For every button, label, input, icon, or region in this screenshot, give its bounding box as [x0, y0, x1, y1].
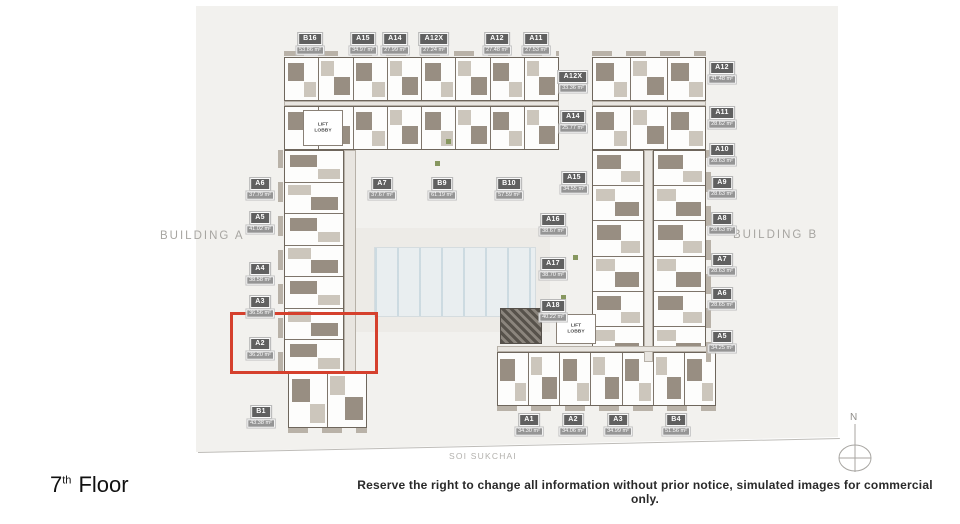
room-cell: [491, 107, 525, 149]
unit-area: 51.56 m²: [662, 427, 689, 435]
unit-name: A12: [485, 33, 509, 45]
unit-area: 38.67 m²: [539, 227, 566, 235]
unit-label-b10: B1057.59 m²: [494, 172, 524, 200]
corridor: [284, 101, 559, 106]
unit-name: A17: [541, 258, 565, 270]
room-cell: [668, 58, 705, 100]
unit-area: 40.22 m²: [539, 313, 566, 321]
room-cell: [491, 58, 525, 100]
stairs-block: [500, 308, 542, 344]
unit-area: 43.38 m²: [247, 419, 274, 427]
unit-area: 34.25 m²: [708, 344, 735, 352]
unit-area: 36.56 m²: [246, 309, 273, 317]
unit-name: A12: [710, 62, 734, 74]
unit-area: 38.58 m²: [246, 276, 273, 284]
unit-name: A3: [250, 296, 270, 308]
unit-label-a2_l: A236.20 m²: [245, 332, 275, 360]
room-cell: [654, 186, 705, 221]
unit-name: A1: [519, 414, 539, 426]
corridor: [497, 346, 716, 352]
room-cell: [654, 221, 705, 256]
unit-label-a6_l: A637.79 m²: [245, 172, 275, 200]
building-wing: [653, 150, 706, 362]
disclaimer-text: Reserve the right to change all informat…: [352, 478, 938, 506]
floor-number: 7: [50, 472, 62, 497]
unit-name: A2: [563, 414, 583, 426]
building-wing: [592, 106, 706, 150]
unit-name: A18: [541, 300, 565, 312]
unit-label-a17: A1738.70 m²: [538, 252, 568, 280]
unit-label-a4_l: A438.58 m²: [245, 257, 275, 285]
compass: N: [825, 412, 885, 476]
unit-name: A9: [712, 177, 732, 189]
room-cell: [285, 214, 343, 246]
unit-area: 33.36 m²: [559, 84, 586, 92]
unit-label-b9: B961.19 m²: [427, 172, 457, 200]
planter-icon: [435, 161, 440, 166]
unit-name: B9: [432, 178, 452, 190]
unit-area: 61.19 m²: [428, 191, 455, 199]
unit-label-a1_b: A134.30 m²: [514, 408, 544, 436]
unit-label-a15_i: A1534.55 m²: [559, 166, 589, 194]
unit-name: A6: [712, 288, 732, 300]
unit-label-a12x_i: A12X33.36 m²: [558, 65, 588, 93]
room-cell: [354, 58, 388, 100]
unit-label-a11_r: A1128.62 m²: [707, 101, 737, 129]
swimming-pool: [374, 247, 536, 317]
unit-label-a6_r: A628.65 m²: [707, 282, 737, 310]
unit-label-b4: B451.56 m²: [661, 408, 691, 436]
compass-north-label: N: [850, 412, 857, 423]
unit-name: A11: [524, 33, 547, 45]
room-cell: [560, 353, 591, 405]
room-cell: [289, 372, 328, 427]
unit-label-a8_r: A828.63 m²: [707, 207, 737, 235]
unit-name: A15: [562, 172, 586, 184]
unit-label-a7_r: A728.63 m²: [707, 248, 737, 276]
unit-label-b1: B143.38 m²: [246, 400, 276, 428]
room-cell: [525, 58, 558, 100]
unit-area: 27.48 m²: [483, 46, 510, 54]
unit-label-a2_b: A234.06 m²: [558, 408, 588, 436]
unit-label-a14_i: A1425.77 m²: [558, 105, 588, 133]
floor-title: 7thFloor: [50, 472, 129, 498]
balcony-strip: [288, 428, 367, 433]
unit-area: 28.63 m²: [708, 157, 735, 165]
building-b-label: BUILDING B: [733, 229, 818, 241]
unit-label-a11_top: A1127.53 m²: [521, 27, 551, 55]
room-cell: [319, 58, 353, 100]
unit-label-a16: A1638.67 m²: [538, 208, 568, 236]
room-cell: [388, 107, 422, 149]
unit-name: A14: [561, 111, 585, 123]
unit-label-a3_b: A334.99 m²: [603, 408, 633, 436]
lift-lobby-a: LIFT LOBBY: [303, 110, 343, 146]
unit-name: B1: [251, 406, 271, 418]
room-cell: [593, 221, 643, 256]
room-cell: [525, 107, 558, 149]
planter-icon: [573, 255, 578, 260]
unit-name: A14: [383, 33, 407, 45]
room-cell: [593, 186, 643, 221]
unit-name: A6: [250, 178, 270, 190]
floor-suffix: th: [62, 475, 71, 487]
room-cell: [654, 257, 705, 292]
unit-area: 41.02 m²: [246, 225, 273, 233]
room-cell: [593, 107, 631, 149]
building-wing: [497, 352, 716, 406]
unit-area: 28.62 m²: [708, 120, 735, 128]
unit-label-a5_l: A541.02 m²: [245, 206, 275, 234]
room-cell: [422, 58, 456, 100]
room-cell: [529, 353, 560, 405]
room-cell: [498, 353, 529, 405]
room-cell: [631, 58, 669, 100]
unit-area: 27.24 m²: [420, 46, 447, 54]
unit-name: A12X: [559, 71, 588, 83]
unit-label-a12_top: A1227.48 m²: [482, 27, 512, 55]
unit-area: 28.65 m²: [708, 301, 735, 309]
room-cell: [285, 151, 343, 183]
room-cell: [654, 353, 685, 405]
room-cell: [285, 58, 319, 100]
unit-name: A16: [541, 214, 565, 226]
unit-name: A10: [710, 144, 734, 156]
unit-name: A2: [250, 338, 270, 350]
unit-area: 38.70 m²: [539, 271, 566, 279]
unit-area: 34.06 m²: [559, 427, 586, 435]
room-cell: [422, 107, 456, 149]
room-cell: [593, 151, 643, 186]
unit-area: 27.53 m²: [522, 46, 549, 54]
building-wing: [288, 371, 367, 428]
unit-area: 28.63 m²: [708, 267, 735, 275]
unit-area: 34.55 m²: [560, 185, 587, 193]
unit-area: 53.86 m²: [296, 46, 323, 54]
room-cell: [593, 257, 643, 292]
unit-name: A15: [351, 33, 375, 45]
room-cell: [285, 277, 343, 309]
unit-label-a15_top: A1534.97 m²: [348, 27, 378, 55]
lift-lobby-b-label: LIFT LOBBY: [565, 323, 586, 334]
unit-area: 34.97 m²: [349, 46, 376, 54]
room-cell: [285, 246, 343, 278]
unit-name: B16: [298, 33, 322, 45]
unit-name: A5: [712, 331, 732, 343]
unit-area: 34.30 m²: [515, 427, 542, 435]
building-wing: [592, 150, 644, 362]
unit-label-a18: A1840.22 m²: [538, 294, 568, 322]
room-cell: [654, 151, 705, 186]
unit-name: A5: [250, 212, 270, 224]
room-cell: [654, 292, 705, 327]
unit-area: 34.99 m²: [604, 427, 631, 435]
unit-label-a5_r: A534.25 m²: [707, 325, 737, 353]
unit-area: 25.77 m²: [559, 124, 586, 132]
corridor: [592, 101, 706, 106]
building-a-label: BUILDING A: [160, 230, 245, 242]
unit-area: 27.99 m²: [381, 46, 408, 54]
room-cell: [593, 58, 631, 100]
room-cell: [285, 183, 343, 215]
unit-label-a3_l: A336.56 m²: [245, 290, 275, 318]
building-wing: [592, 57, 706, 101]
unit-label-a7_m: A737.67 m²: [367, 172, 397, 200]
corridor: [644, 150, 653, 362]
room-cell: [388, 58, 422, 100]
unit-label-a12_r: A1241.48 m²: [707, 56, 737, 84]
lift-lobby-a-label: LIFT LOBBY: [312, 122, 333, 133]
room-cell: [668, 107, 705, 149]
street-label: SOI SUKCHAI: [413, 451, 553, 461]
room-cell: [456, 58, 490, 100]
balcony-strip: [592, 51, 706, 56]
unit-name: A8: [712, 213, 732, 225]
unit-area: 37.79 m²: [246, 191, 273, 199]
floor-word: Floor: [78, 472, 128, 497]
unit-area: 36.20 m²: [246, 351, 273, 359]
unit-label-a12x_top: A12X27.24 m²: [419, 27, 449, 55]
room-cell: [591, 353, 622, 405]
unit-area: 37.67 m²: [368, 191, 395, 199]
unit-label-b16: B1653.86 m²: [295, 27, 325, 55]
unit-name: A7: [372, 178, 392, 190]
planter-icon: [446, 139, 451, 144]
unit-name: A4: [250, 263, 270, 275]
unit-label-a14_top: A1427.99 m²: [380, 27, 410, 55]
unit-label-a9_r: A928.63 m²: [707, 171, 737, 199]
room-cell: [631, 107, 669, 149]
unit-area: 28.63 m²: [708, 226, 735, 234]
unit-name: B10: [497, 178, 521, 190]
room-cell: [593, 292, 643, 327]
unit-label-a10_r: A1028.63 m²: [707, 138, 737, 166]
building-wing: [284, 57, 559, 101]
unit-area: 41.48 m²: [708, 75, 735, 83]
unit-name: B4: [666, 414, 686, 426]
unit-name: A3: [608, 414, 628, 426]
unit-name: A12X: [420, 33, 449, 45]
room-cell: [328, 372, 366, 427]
unit-area: 28.63 m²: [708, 190, 735, 198]
unit-name: A7: [712, 254, 732, 266]
room-cell: [456, 107, 490, 149]
unit-area: 57.59 m²: [495, 191, 522, 199]
room-cell: [354, 107, 388, 149]
unit-name: A11: [710, 107, 733, 119]
floor-plan-page: LIFT LOBBY LIFT LOBBY BUILDING A BUILDIN…: [0, 0, 960, 524]
